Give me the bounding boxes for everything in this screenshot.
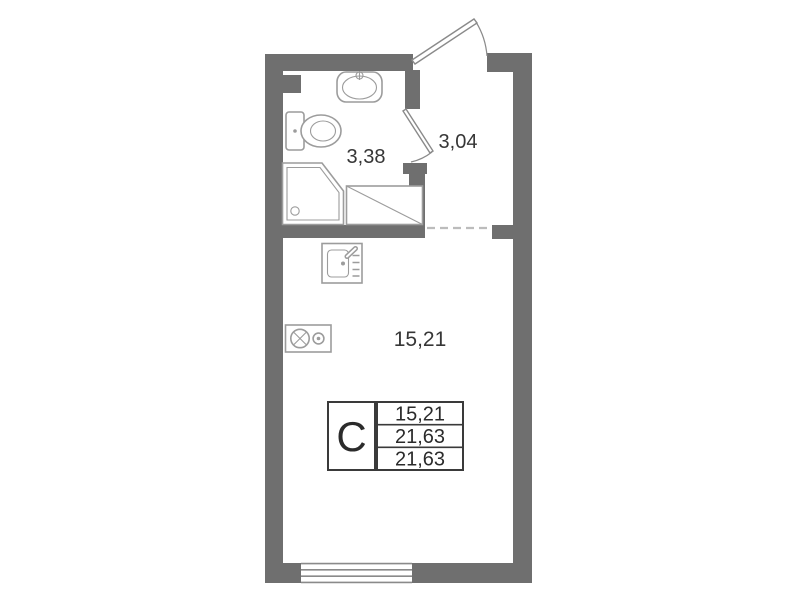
stamp-unit-type: C <box>336 413 366 460</box>
wall-top-left-segment <box>265 54 413 71</box>
bathroom-door-swing-arc <box>411 152 432 162</box>
floor-plan-page: 3,38 3,04 15,21 C 15,21 21,63 21,63 <box>0 0 799 600</box>
shower-tray-outline <box>283 163 344 225</box>
wall-bottom-right-segment <box>412 563 532 583</box>
wall-bathroom-right-upper <box>405 70 420 109</box>
stamp-row-value: 21,63 <box>395 426 445 448</box>
hatched-counter-icon <box>347 186 423 225</box>
entry-door-leaf <box>412 19 477 64</box>
stamp-row-value: 15,21 <box>395 404 445 426</box>
entry-door-swing-arc <box>476 22 487 56</box>
wall-right <box>513 53 532 583</box>
window <box>301 563 412 583</box>
toilet-tank-button <box>293 129 297 133</box>
wall-hall-stub <box>492 225 513 239</box>
room-area-label-living: 15,21 <box>394 328 447 351</box>
wall-bathroom-bottom <box>265 225 425 238</box>
floor-plan: 3,38 3,04 15,21 C 15,21 21,63 21,63 <box>0 0 799 600</box>
entry-door <box>412 19 487 64</box>
room-area-label-bathroom: 3,38 <box>347 146 386 168</box>
stove-burner-small-dot <box>317 337 321 341</box>
bathroom-door-leaf <box>403 109 433 153</box>
sink-drain <box>341 262 345 266</box>
toilet-icon <box>286 112 341 150</box>
wall-left <box>265 54 283 583</box>
shower-tray-icon <box>283 163 344 225</box>
vent-shaft <box>283 75 301 93</box>
window-opening <box>301 563 412 583</box>
stamp-row-value: 21,63 <box>395 449 445 471</box>
unit-stamp: C 15,21 21,63 21,63 <box>328 402 463 471</box>
bathroom-door <box>403 109 433 162</box>
stove-icon <box>286 325 332 352</box>
washbasin-icon <box>337 71 382 102</box>
room-area-label-hall: 3,04 <box>439 131 478 153</box>
kitchen-sink-icon <box>322 244 362 284</box>
wall-bottom-left-block <box>265 563 301 583</box>
